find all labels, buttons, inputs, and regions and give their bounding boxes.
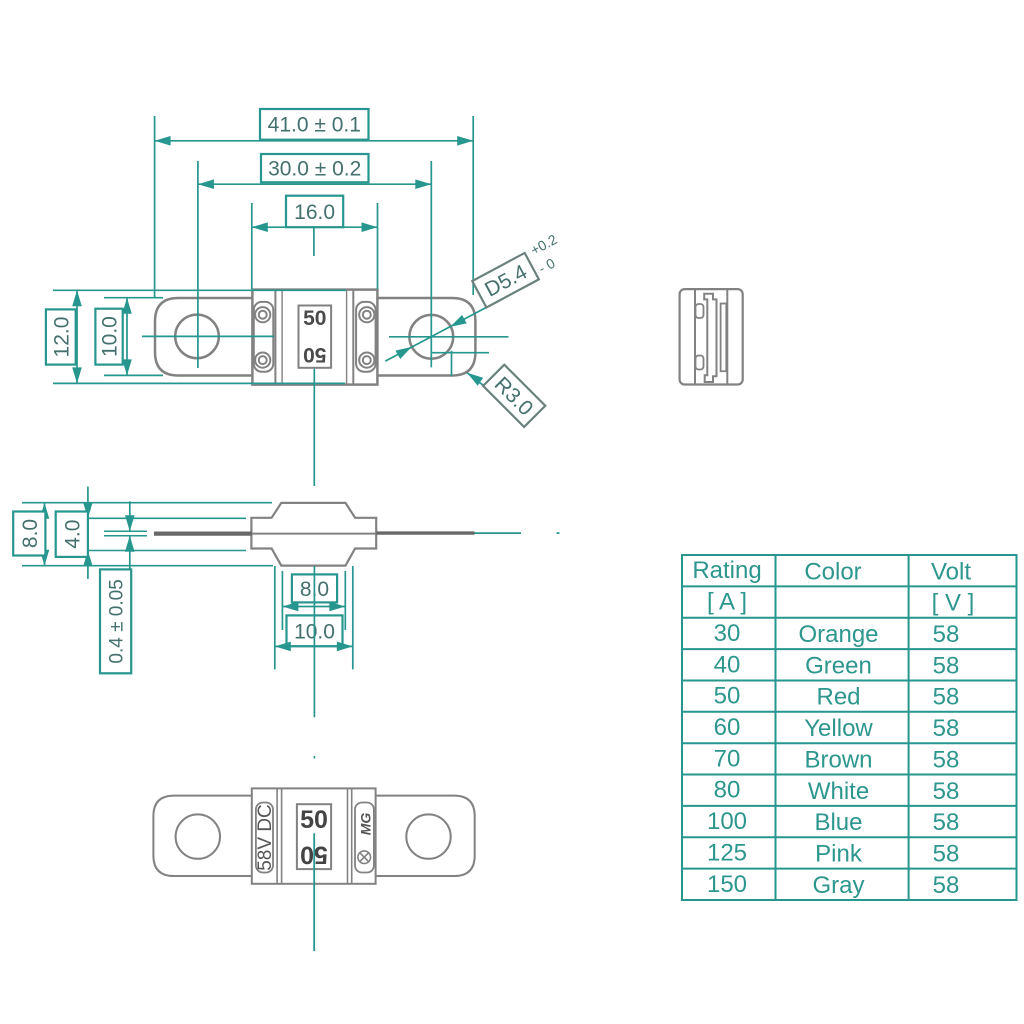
svg-text:Blue: Blue bbox=[814, 809, 862, 836]
svg-text:58: 58 bbox=[933, 715, 960, 742]
svg-text:58: 58 bbox=[933, 778, 960, 805]
svg-text:Color: Color bbox=[804, 558, 861, 585]
svg-text:41.0 ± 0.1: 41.0 ± 0.1 bbox=[268, 114, 361, 137]
svg-text:150: 150 bbox=[707, 871, 747, 898]
svg-text:Yellow: Yellow bbox=[804, 715, 873, 742]
svg-text:Green: Green bbox=[805, 652, 872, 679]
svg-text:[ V ]: [ V ] bbox=[932, 590, 975, 617]
svg-text:100: 100 bbox=[707, 808, 747, 835]
svg-text:58: 58 bbox=[933, 684, 960, 711]
svg-text:40: 40 bbox=[714, 651, 741, 678]
svg-text:Orange: Orange bbox=[798, 621, 878, 648]
svg-text:50: 50 bbox=[303, 307, 326, 330]
svg-text:Rating: Rating bbox=[692, 557, 761, 584]
svg-text:58: 58 bbox=[933, 652, 960, 679]
svg-text:10.0: 10.0 bbox=[99, 316, 122, 357]
svg-text:4.0: 4.0 bbox=[61, 520, 84, 549]
svg-text:58: 58 bbox=[933, 841, 960, 868]
svg-text:80: 80 bbox=[714, 777, 741, 804]
svg-text:Brown: Brown bbox=[804, 747, 872, 774]
svg-text:Red: Red bbox=[816, 684, 860, 711]
svg-text:MG: MG bbox=[358, 813, 374, 836]
svg-text:8.0: 8.0 bbox=[19, 519, 42, 548]
svg-text:12.0: 12.0 bbox=[50, 317, 73, 358]
svg-text:Volt: Volt bbox=[931, 558, 971, 585]
svg-text:58: 58 bbox=[933, 872, 960, 899]
svg-text:58: 58 bbox=[933, 809, 960, 836]
svg-text:50: 50 bbox=[300, 806, 328, 834]
svg-text:30: 30 bbox=[714, 620, 741, 647]
svg-text:58: 58 bbox=[933, 621, 960, 648]
svg-text:60: 60 bbox=[714, 714, 741, 741]
svg-text:30.0 ± 0.2: 30.0 ± 0.2 bbox=[268, 158, 361, 181]
svg-text:50: 50 bbox=[303, 343, 326, 366]
svg-text:50: 50 bbox=[714, 683, 741, 710]
svg-text:Pink: Pink bbox=[815, 841, 863, 868]
svg-text:Gray: Gray bbox=[812, 872, 864, 899]
svg-text:0.4 ± 0.05: 0.4 ± 0.05 bbox=[107, 579, 128, 663]
svg-text:58V DC: 58V DC bbox=[255, 804, 276, 871]
svg-text:White: White bbox=[808, 778, 869, 805]
svg-text:[ A ]: [ A ] bbox=[707, 589, 747, 616]
svg-text:70: 70 bbox=[714, 745, 741, 772]
svg-text:16.0: 16.0 bbox=[294, 201, 335, 224]
svg-text:58: 58 bbox=[933, 747, 960, 774]
svg-text:125: 125 bbox=[707, 839, 747, 866]
